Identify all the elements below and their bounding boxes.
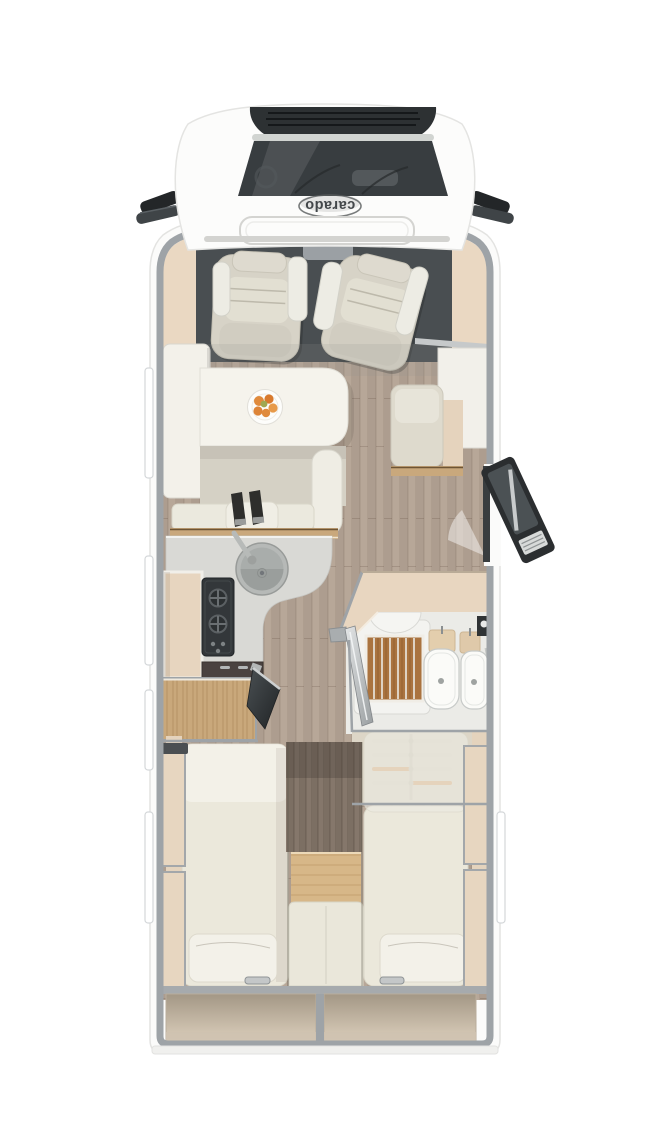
window-left-dinette: [145, 368, 153, 478]
drawer-handle: [238, 666, 248, 669]
headrest: [232, 251, 287, 274]
orange: [253, 406, 262, 415]
armrest: [213, 262, 230, 316]
fruit-plate: [248, 390, 283, 425]
faucet-base: [248, 556, 257, 565]
hob-knob: [216, 649, 220, 653]
storage-divider: [316, 994, 324, 1042]
seatbelt-buckle: [253, 517, 264, 524]
step-oak: [291, 852, 361, 908]
rear-bumper: [152, 1046, 498, 1054]
sink-drain: [260, 571, 264, 575]
window-left-kitchen: [145, 556, 153, 665]
windshield: [238, 141, 448, 196]
motorhome-floorplan-render: carado: [0, 0, 650, 1140]
rear-sill: [163, 986, 487, 994]
logo-text: carado: [305, 197, 356, 213]
window-left-bed: [145, 812, 153, 923]
hood-rear-trim: [204, 236, 450, 242]
armrest: [288, 257, 307, 321]
window-right-bed: [497, 812, 505, 923]
brand-logo: carado: [299, 194, 361, 217]
front-grille: [250, 107, 436, 134]
window-left-mid: [145, 690, 153, 770]
bench-end-cap: [312, 450, 342, 534]
basin-drain: [471, 679, 477, 685]
interior: [158, 232, 493, 1042]
toilet-drain: [438, 678, 444, 684]
bed-left-pillow: [189, 934, 277, 982]
door-hinge: [329, 627, 347, 642]
side-seat-panel: [443, 400, 463, 466]
bed-right-head-ghost: [364, 732, 468, 812]
oak-cabinet: [158, 678, 256, 740]
seatbelt-buckle: [235, 519, 246, 526]
side-seat-pad: [395, 389, 439, 423]
orange: [262, 409, 270, 417]
floorplan-svg: carado: [0, 0, 650, 1140]
green-fruit: [261, 401, 268, 408]
cowl-trim: [252, 134, 434, 141]
bed-right-pillow: [380, 934, 466, 982]
bed-lift-handle: [380, 977, 404, 984]
seat-back-panel: [224, 276, 290, 323]
hob-knob: [221, 642, 225, 646]
drawer-handle: [220, 666, 230, 669]
bed-lift-handle: [245, 977, 270, 984]
gas-hob: [202, 578, 234, 656]
hob-knob: [211, 642, 215, 646]
